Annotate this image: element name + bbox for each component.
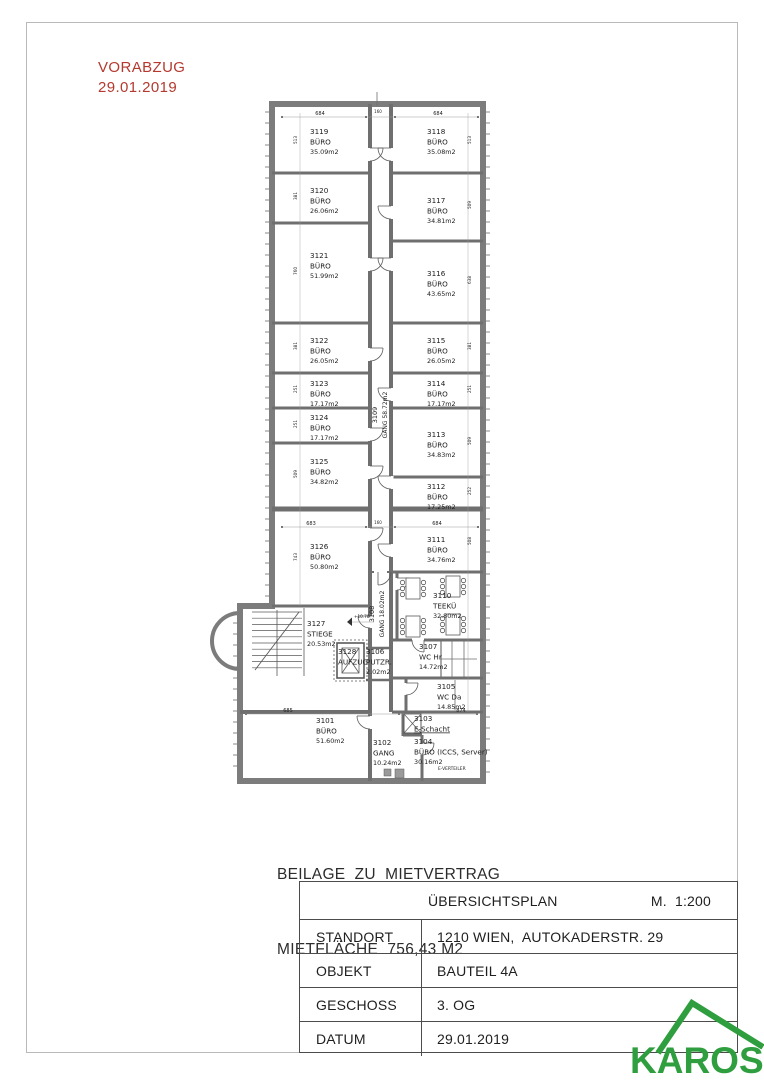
row-value: BAUTEIL 4A bbox=[422, 954, 737, 987]
dimension-label: 160 bbox=[374, 520, 382, 525]
room-label: 3125BÜRO34.82m2 bbox=[310, 457, 339, 486]
karos-logo-text: KAROS bbox=[630, 1040, 764, 1082]
svg-text:251: 251 bbox=[293, 385, 298, 393]
side-dimension-label: 509 bbox=[293, 470, 298, 478]
titleblock-row: GESCHOSS 3. OG bbox=[300, 988, 737, 1022]
room-label: 3101BÜRO51.60m2 bbox=[316, 716, 345, 745]
svg-text:251: 251 bbox=[293, 420, 298, 428]
side-dimension-label: 508 bbox=[467, 537, 472, 545]
svg-text:513: 513 bbox=[293, 136, 298, 144]
side-dimension-label: 251 bbox=[467, 385, 472, 393]
room-label: 3120BÜRO26.06m2 bbox=[310, 186, 339, 215]
row-label: STANDORT bbox=[300, 920, 422, 953]
room-label: 3124BÜRO17.17m2 bbox=[310, 413, 339, 442]
svg-text:381: 381 bbox=[293, 192, 298, 200]
room-label: 3118BÜRO35.08m2 bbox=[427, 127, 456, 156]
stamp-line1: VORABZUG bbox=[98, 58, 185, 78]
dimension-label: 684 bbox=[315, 111, 325, 117]
svg-text:251: 251 bbox=[467, 385, 472, 393]
dimension-label: 684 bbox=[433, 111, 443, 117]
svg-text:509: 509 bbox=[293, 470, 298, 478]
room-label: 3111BÜRO34.76m2 bbox=[427, 535, 456, 564]
room-label: 3106PUTZR.2.02m2 bbox=[366, 647, 392, 676]
svg-text:509: 509 bbox=[467, 437, 472, 445]
svg-text:638: 638 bbox=[467, 276, 472, 284]
room-label: 3127STIEGE20.53m2 bbox=[307, 619, 336, 648]
side-dimension-label: 743 bbox=[293, 553, 298, 561]
room-label: 3121BÜRO51.99m2 bbox=[310, 251, 339, 280]
svg-text:381: 381 bbox=[293, 342, 298, 350]
room-label: 3114BÜRO17.17m2 bbox=[427, 379, 456, 408]
room-label: 3123BÜRO17.17m2 bbox=[310, 379, 339, 408]
room-label: 3113BÜRO34.83m2 bbox=[427, 430, 456, 459]
room-label: 3107WC Hr14.72m2 bbox=[419, 642, 448, 671]
side-dimension-label: 509 bbox=[467, 201, 472, 209]
row-value: 3. OG bbox=[422, 988, 737, 1021]
dimension-label: 683 bbox=[306, 521, 316, 527]
drawing-page: { "stamp": { "line1": "VORABZUG", "line2… bbox=[0, 0, 764, 1080]
svg-text:743: 743 bbox=[293, 553, 298, 561]
dimension-label: 685 bbox=[283, 708, 293, 714]
room-label: 3103E-Schacht bbox=[414, 714, 450, 734]
svg-text:GANG 58.72m2: GANG 58.72m2 bbox=[382, 392, 389, 439]
side-dimension-label: 381 bbox=[293, 192, 298, 200]
staircase bbox=[252, 608, 304, 676]
svg-text:513: 513 bbox=[467, 136, 472, 144]
side-dimension-label: 760 bbox=[293, 267, 298, 275]
dimension-label: 874 bbox=[456, 708, 466, 714]
annotation-label: E-VERTEILER bbox=[438, 766, 466, 772]
stamp-line2: 29.01.2019 bbox=[98, 78, 185, 98]
row-value: 1210 WIEN, AUTOKADERSTR. 29 bbox=[422, 920, 737, 953]
dimension-label: 160 bbox=[374, 109, 382, 114]
svg-text:252: 252 bbox=[467, 487, 472, 495]
room-label: 3116BÜRO43.65m2 bbox=[427, 269, 456, 298]
side-dimension-label: 513 bbox=[293, 136, 298, 144]
titleblock-header: ÜBERSICHTSPLAN M. 1:200 bbox=[300, 882, 737, 920]
side-dimension-label: 513 bbox=[467, 136, 472, 144]
row-label: DATUM bbox=[300, 1022, 422, 1056]
svg-text:760: 760 bbox=[293, 267, 298, 275]
vorabzug-stamp: VORABZUG 29.01.2019 bbox=[98, 58, 185, 98]
room-label: 3104BÜRO (ICCS, Server)30.16m2 bbox=[414, 737, 488, 766]
plan-scale: M. 1:200 bbox=[651, 893, 711, 909]
side-dimension-label: 509 bbox=[467, 437, 472, 445]
titleblock-row: OBJEKT BAUTEIL 4A bbox=[300, 954, 737, 988]
side-dimension-label: 252 bbox=[467, 487, 472, 495]
room-label: 3112BÜRO17.25m2 bbox=[427, 482, 456, 511]
room-label: 3105WC Da14.85m2 bbox=[437, 682, 466, 711]
side-dimension-label: 638 bbox=[467, 276, 472, 284]
row-label: GESCHOSS bbox=[300, 988, 422, 1021]
svg-text:509: 509 bbox=[467, 201, 472, 209]
side-dimension-label: 251 bbox=[293, 420, 298, 428]
side-dimension-label: 381 bbox=[467, 342, 472, 350]
room-label: 3119BÜRO35.09m2 bbox=[310, 127, 339, 156]
svg-text:508: 508 bbox=[467, 537, 472, 545]
room-label: 3122BÜRO26.05m2 bbox=[310, 336, 339, 365]
row-label: OBJEKT bbox=[300, 954, 422, 987]
room-label: 3102GANG10.24m2 bbox=[373, 738, 402, 767]
room-label: 3109GANG 58.72m2 bbox=[371, 392, 389, 439]
annotation-label: +10.78 bbox=[354, 614, 370, 619]
dimension-label: 684 bbox=[432, 521, 442, 527]
side-dimension-label: 251 bbox=[293, 385, 298, 393]
svg-text:GANG 18.02m2: GANG 18.02m2 bbox=[379, 591, 386, 638]
title-block: ÜBERSICHTSPLAN M. 1:200 STANDORT 1210 WI… bbox=[299, 881, 738, 1053]
room-label: 3117BÜRO34.81m2 bbox=[427, 196, 456, 225]
plan-title: ÜBERSICHTSPLAN bbox=[428, 893, 558, 909]
titleblock-row: STANDORT 1210 WIEN, AUTOKADERSTR. 29 bbox=[300, 920, 737, 954]
room-label: 3126BÜRO50.80m2 bbox=[310, 542, 339, 571]
side-dimension-label: 381 bbox=[293, 342, 298, 350]
room-label: 3115BÜRO26.05m2 bbox=[427, 336, 456, 365]
svg-text:3109: 3109 bbox=[371, 407, 379, 424]
svg-text:381: 381 bbox=[467, 342, 472, 350]
